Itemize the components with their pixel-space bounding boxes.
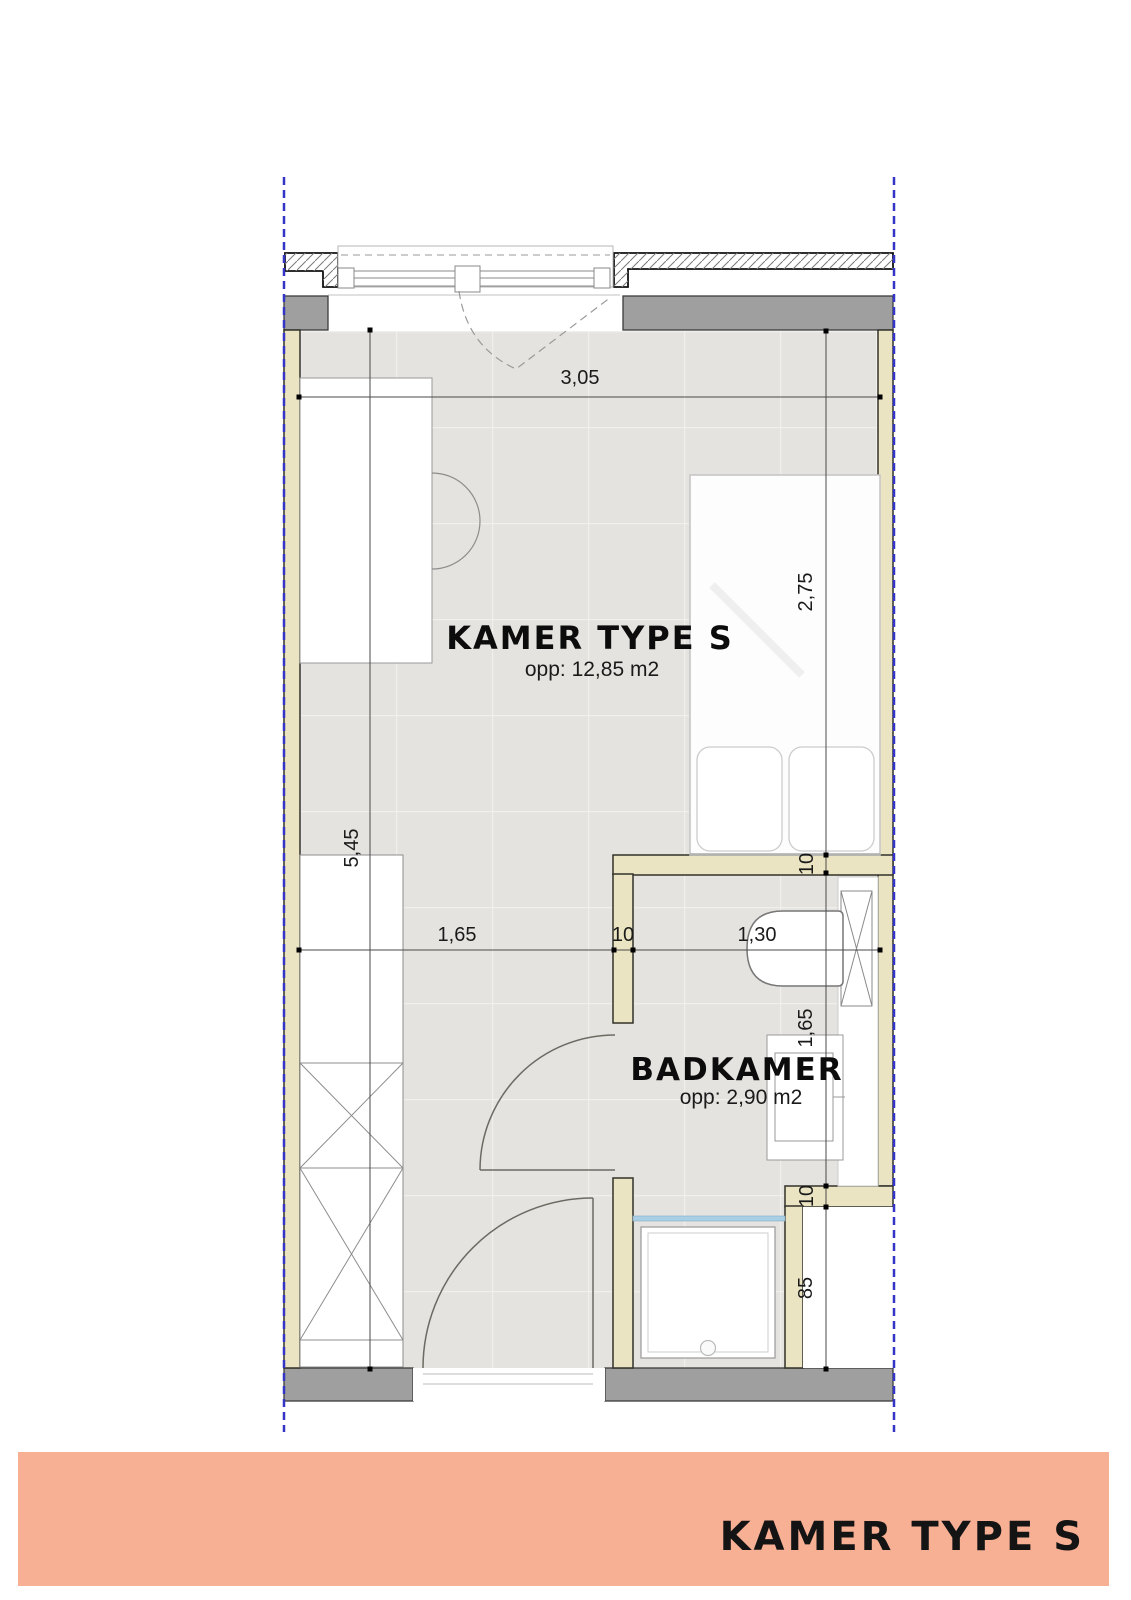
- wardrobe-body: [300, 855, 403, 1367]
- wardrobe: [300, 855, 403, 1367]
- dim-closet-to-bathroom: 1,65: [438, 924, 477, 946]
- dim-room-length: 5,45: [341, 829, 363, 868]
- dim-niche-wall: 10: [796, 1185, 818, 1207]
- wall-top-right: [623, 296, 893, 330]
- dim-wall-mid: 10: [612, 924, 634, 946]
- pillow-right: [789, 747, 874, 851]
- wall-bathroom-left-lower: [613, 1178, 633, 1368]
- dim-bathroom-top-wall: 10: [796, 853, 818, 875]
- shower-drain: [701, 1341, 716, 1356]
- hatch-left-pattern: [285, 253, 338, 287]
- shower-glass: [633, 1216, 785, 1221]
- banner: KAMER TYPE S: [18, 1452, 1109, 1586]
- bathroom-area: opp: 2,90 m2: [680, 1086, 803, 1109]
- window-mullion-right: [594, 268, 610, 288]
- dim-bathroom-width: 1,30: [738, 924, 777, 946]
- bathroom-title: BADKAMER: [630, 1052, 843, 1088]
- banner-title: KAMER TYPE S: [720, 1514, 1085, 1560]
- wall-bottom-left: [284, 1368, 413, 1401]
- toilet: [747, 911, 843, 986]
- window-mullion-center: [455, 266, 480, 292]
- wall-left-exterior: [284, 330, 300, 1368]
- dim-bed-wall: 2,75: [795, 573, 817, 612]
- pillow-left: [697, 747, 782, 851]
- bed: [690, 475, 880, 855]
- floor-plan: 3,05 1,65 10 1,30 5,45 2,75 10 1,65 10 8…: [0, 0, 1131, 1600]
- hatch-right-pattern: [614, 253, 893, 287]
- wall-bathroom-top: [613, 855, 893, 875]
- room-area: opp: 12,85 m2: [525, 658, 659, 681]
- dim-bathroom-depth: 1,65: [795, 1009, 817, 1048]
- entrance: [413, 1368, 605, 1401]
- shower-tray: [641, 1227, 775, 1358]
- shower: [633, 1216, 785, 1358]
- dim-room-width: 3,05: [561, 367, 600, 389]
- window-mullion-left: [338, 268, 354, 288]
- room-title: KAMER TYPE S: [446, 619, 734, 657]
- wall-bottom-right: [605, 1368, 893, 1401]
- dim-niche-width: 85: [795, 1277, 817, 1299]
- wall-top-left: [284, 296, 328, 330]
- radiator: [841, 891, 872, 1006]
- desk: [300, 378, 432, 663]
